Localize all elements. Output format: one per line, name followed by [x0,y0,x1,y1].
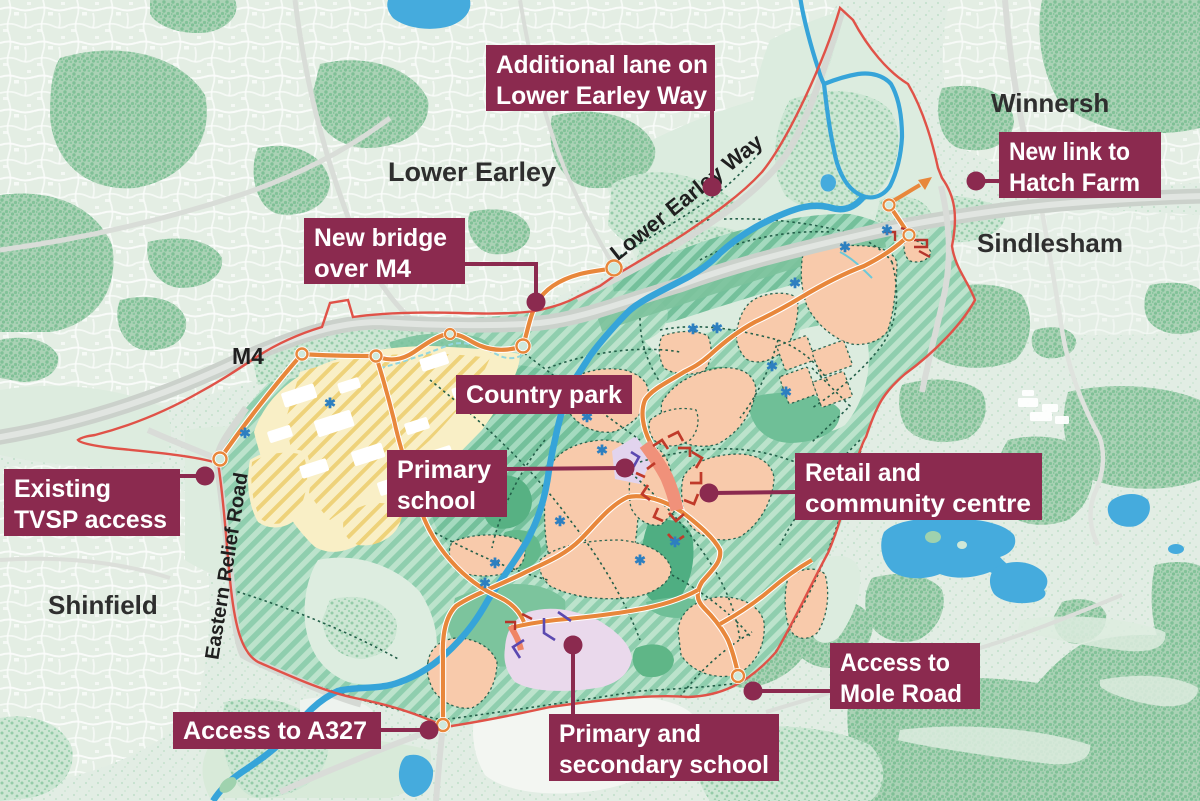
svg-text:New bridge: New bridge [314,224,447,252]
svg-text:✱: ✱ [239,425,251,441]
svg-text:Mole Road: Mole Road [840,680,962,708]
svg-text:Winnersh: Winnersh [991,88,1109,118]
svg-text:community centre: community centre [805,490,1031,518]
svg-text:TVSP access: TVSP access [14,506,167,534]
svg-text:New link to: New link to [1009,138,1130,166]
svg-text:Access to A327: Access to A327 [183,717,367,745]
svg-text:school: school [397,487,476,515]
svg-text:✱: ✱ [711,320,723,336]
svg-text:Existing: Existing [14,475,111,503]
svg-text:✱: ✱ [489,555,501,571]
svg-text:✱: ✱ [324,395,336,411]
svg-text:Primary and: Primary and [559,720,701,748]
svg-text:Sindlesham: Sindlesham [977,228,1123,258]
svg-text:✱: ✱ [634,552,646,568]
svg-text:✱: ✱ [780,384,792,400]
svg-text:Retail and: Retail and [805,459,921,487]
svg-text:✱: ✱ [596,442,608,458]
svg-text:✱: ✱ [839,239,851,255]
svg-text:Shinfield: Shinfield [48,590,158,620]
svg-text:✱: ✱ [766,358,778,374]
svg-text:✱: ✱ [881,222,893,238]
svg-text:Additional lane on: Additional lane on [496,51,708,79]
svg-text:✱: ✱ [789,275,801,291]
svg-text:secondary school: secondary school [559,751,769,779]
svg-text:✱: ✱ [669,534,681,550]
svg-text:✱: ✱ [687,321,699,337]
svg-text:Hatch Farm: Hatch Farm [1009,169,1140,197]
svg-text:over M4: over M4 [314,255,411,283]
svg-text:✱: ✱ [554,513,566,529]
svg-text:Country park: Country park [466,381,622,409]
svg-text:Lower Earley: Lower Earley [388,157,556,187]
svg-text:Access to: Access to [840,649,950,677]
svg-text:Primary: Primary [397,456,491,484]
svg-text:Lower Earley Way: Lower Earley Way [496,82,707,110]
svg-text:✱: ✱ [479,575,491,591]
svg-text:M4: M4 [232,343,264,369]
